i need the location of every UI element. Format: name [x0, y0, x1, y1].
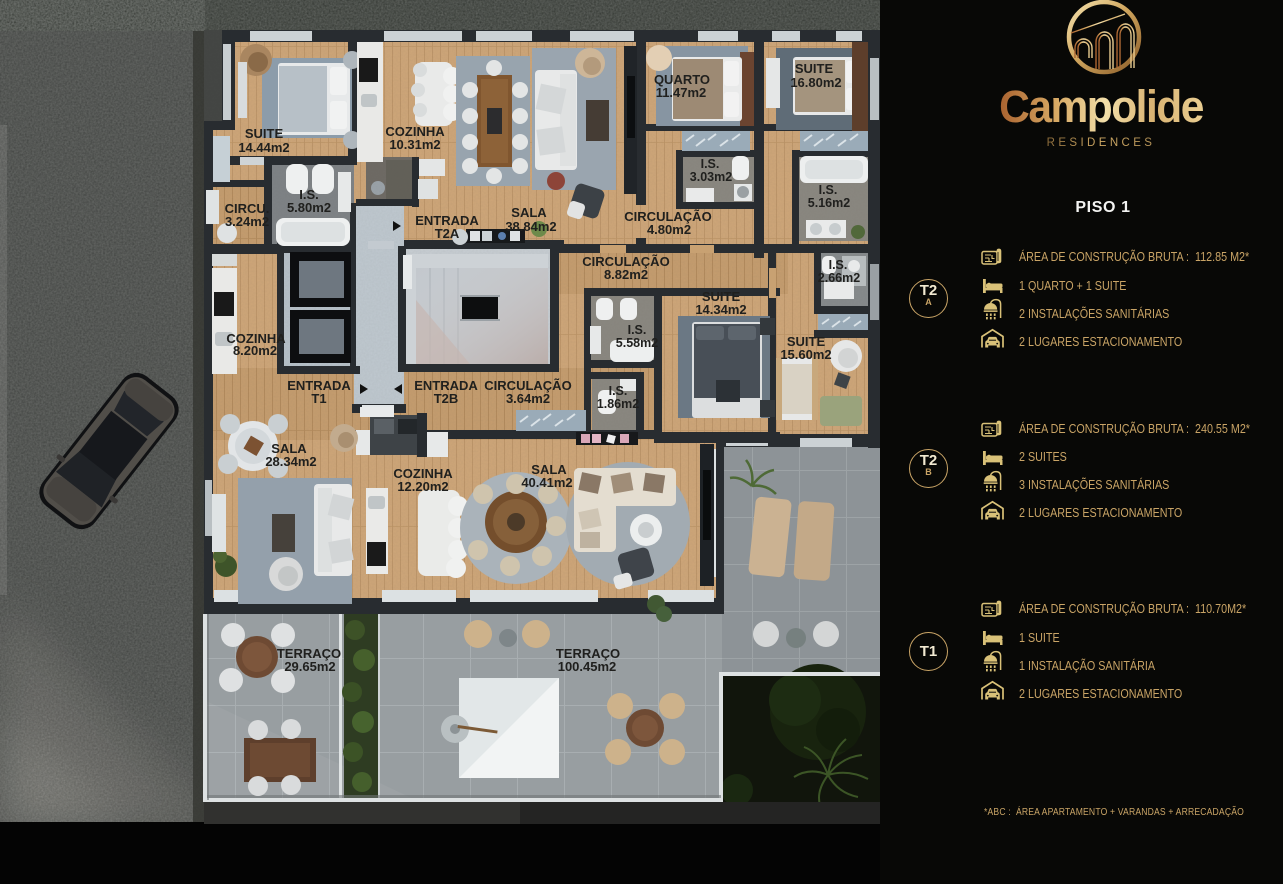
svg-text:2.66m2: 2.66m2	[818, 271, 860, 285]
svg-text:15.60m2: 15.60m2	[780, 347, 831, 362]
svg-text:8.82m2: 8.82m2	[604, 267, 648, 282]
svg-text:5.58m2: 5.58m2	[616, 336, 658, 350]
svg-text:11.47m2: 11.47m2	[656, 85, 707, 100]
svg-text:38.84m2: 38.84m2	[505, 219, 556, 234]
svg-text:16.80m2: 16.80m2	[790, 75, 841, 90]
svg-text:10.31m2: 10.31m2	[389, 137, 440, 152]
svg-text:14.34m2: 14.34m2	[695, 302, 746, 317]
svg-text:100.45m2: 100.45m2	[558, 659, 617, 674]
svg-text:T2A: T2A	[435, 226, 460, 241]
svg-text:SUITE: SUITE	[245, 126, 284, 141]
svg-text:40.41m2: 40.41m2	[521, 475, 572, 490]
svg-text:3.64m2: 3.64m2	[506, 391, 550, 406]
svg-text:T2B: T2B	[434, 391, 459, 406]
svg-text:5.80m2: 5.80m2	[287, 200, 331, 215]
svg-text:3.24m2: 3.24m2	[225, 214, 269, 229]
svg-text:8.20m2: 8.20m2	[233, 343, 277, 358]
svg-text:I.S.: I.S.	[701, 157, 720, 171]
svg-text:29.65m2: 29.65m2	[284, 659, 335, 674]
svg-text:T1: T1	[311, 391, 326, 406]
svg-text:I.S.: I.S.	[819, 183, 838, 197]
svg-text:SALA: SALA	[511, 205, 547, 220]
svg-text:28.34m2: 28.34m2	[265, 454, 316, 469]
svg-text:1.86m2: 1.86m2	[597, 397, 639, 411]
svg-text:SUITE: SUITE	[795, 61, 834, 76]
svg-text:12.20m2: 12.20m2	[397, 479, 448, 494]
svg-text:5.16m2: 5.16m2	[808, 196, 850, 210]
svg-text:I.S.: I.S.	[829, 258, 848, 272]
svg-text:I.S.: I.S.	[609, 384, 628, 398]
svg-text:14.44m2: 14.44m2	[238, 140, 289, 155]
svg-text:4.80m2: 4.80m2	[647, 222, 691, 237]
svg-text:3.03m2: 3.03m2	[690, 170, 732, 184]
svg-text:I.S.: I.S.	[628, 323, 647, 337]
